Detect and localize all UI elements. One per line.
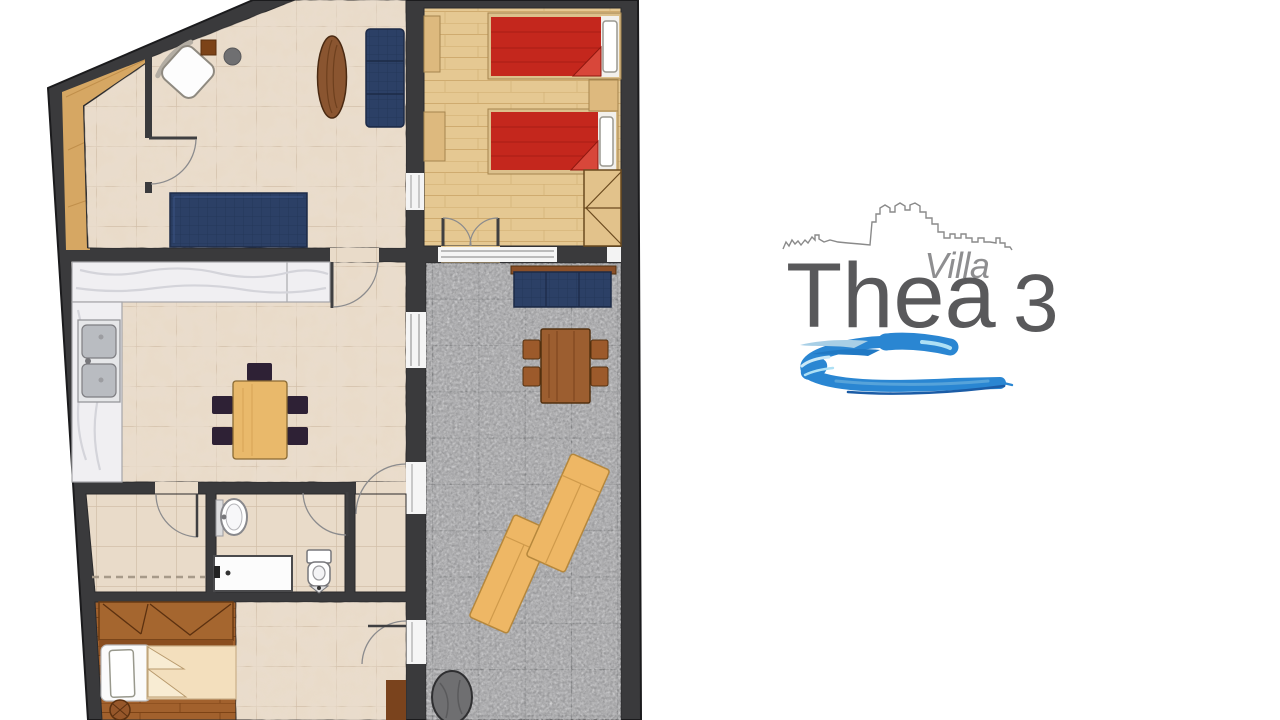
svg-text:3: 3 bbox=[1013, 258, 1059, 349]
svg-text:Thea: Thea bbox=[786, 245, 997, 347]
